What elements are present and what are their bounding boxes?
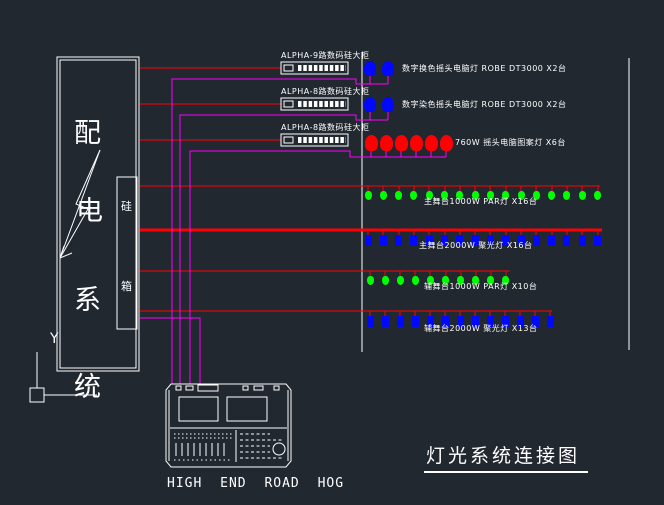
fixture-stem [475, 271, 476, 276]
fixture-stem [459, 186, 460, 191]
row-label-2: 数字染色摇头电脑灯 ROBE DT3000 X2台 [402, 101, 567, 109]
fixture-stem [445, 311, 446, 316]
spot-fixture [410, 235, 417, 246]
fixture-stem [413, 186, 414, 191]
cabinet-char-4: 统 [74, 374, 101, 401]
spot-fixture [382, 316, 389, 327]
spot-fixture [548, 235, 555, 246]
fixture-stem [505, 311, 506, 316]
fixture-stem [551, 230, 552, 235]
fader-bank [176, 443, 224, 456]
par-fixture [412, 276, 419, 285]
fixture-stem [505, 186, 506, 191]
fixture-stem [475, 230, 476, 235]
moving-head-fixture [425, 135, 438, 151]
spot-fixture [579, 235, 586, 246]
moving-head-fixture [440, 135, 453, 151]
spot-fixture [594, 235, 601, 246]
fixture-stem [385, 271, 386, 276]
moving-head-fixture [365, 135, 378, 151]
cad-canvas[interactable]: 配 电 系 统 硅 箱 ALPHA-9路数码硅大柜 ALPHA-8路数码硅大柜 … [0, 0, 664, 505]
dimmer-rack-1[interactable] [281, 62, 348, 74]
fixture-stem [505, 271, 506, 276]
row-label-7: 辅舞台2000W 聚光灯 X13台 [424, 325, 538, 333]
par-fixture [365, 191, 372, 200]
row-label-6: 辅舞台1000W PAR灯 X10台 [424, 283, 537, 291]
fixture-stem [413, 230, 414, 235]
fixture-stem [415, 271, 416, 276]
par-fixture [594, 191, 601, 200]
row-label-5: 主舞台2000W 聚光灯 X16台 [419, 242, 533, 250]
fixture-stem [535, 311, 536, 316]
fixture-stem [551, 186, 552, 191]
fixture-stem [383, 230, 384, 235]
spot-fixture [365, 235, 372, 246]
drawing-title: 灯光系统连接图 [424, 447, 588, 473]
par-fixture [382, 276, 389, 285]
par-fixture [367, 276, 374, 285]
console-label: HIGH END ROAD HOG [167, 477, 344, 490]
spot-fixture [547, 316, 554, 327]
fixture-stem [430, 311, 431, 316]
rack-label-3: ALPHA-8路数码硅大柜 [281, 124, 370, 132]
fixture-stem [368, 230, 369, 235]
fixture-stem [597, 186, 598, 191]
par-fixture [397, 276, 404, 285]
spot-fixture [412, 316, 419, 327]
linework-layer [0, 0, 664, 505]
fixture-stem [400, 271, 401, 276]
fixture-stem [415, 311, 416, 316]
fixture-stem [460, 271, 461, 276]
fixture-stem [597, 230, 598, 235]
moving-head-fixture [410, 135, 423, 151]
trackball-icon [273, 443, 285, 455]
fixture-stem [475, 186, 476, 191]
fixture-stem [444, 230, 445, 235]
spot-fixture [563, 235, 570, 246]
fixture-stem [444, 186, 445, 191]
fixture-stem [582, 230, 583, 235]
fixture-stem [383, 186, 384, 191]
fixture-stem [550, 311, 551, 316]
moving-head-fixture [395, 135, 408, 151]
fixture-stem [521, 186, 522, 191]
fixture-stem [490, 186, 491, 191]
fixture-stem [490, 271, 491, 276]
fixture-stem [475, 311, 476, 316]
dimmer-box-char-2: 箱 [121, 281, 132, 292]
fixture-stem [370, 271, 371, 276]
dimmer-box-char-1: 硅 [121, 201, 132, 212]
fixture-stem [566, 230, 567, 235]
fixture-stem [582, 186, 583, 191]
spot-fixture [395, 235, 402, 246]
spot-fixture [380, 235, 387, 246]
fixture-stem [398, 230, 399, 235]
fixture-stem [430, 271, 431, 276]
dimmer-rack-3[interactable] [281, 134, 348, 146]
spot-fixture [397, 316, 404, 327]
fixture-stem [460, 311, 461, 316]
fixture-stem [536, 186, 537, 191]
fixture-stem [385, 311, 386, 316]
moving-head-fixture [364, 97, 376, 112]
cabinet-char-1: 配 [74, 120, 101, 147]
fixture-stem [445, 271, 446, 276]
ucs-y-label: Y [50, 332, 59, 346]
fixture-stem [505, 230, 506, 235]
row-label-4: 主舞台1000W PAR灯 X16台 [424, 198, 537, 206]
fixture-stem [370, 311, 371, 316]
par-fixture [380, 191, 387, 200]
fixture-stem [521, 230, 522, 235]
fixture-stem [566, 186, 567, 191]
fixture-stem [368, 186, 369, 191]
dimmer-rack-2[interactable] [281, 98, 348, 110]
spot-fixture [533, 235, 540, 246]
fixture-stem [398, 186, 399, 191]
fixture-stem [400, 311, 401, 316]
moving-head-fixture [380, 135, 393, 151]
fixture-stem [429, 230, 430, 235]
spot-fixture [367, 316, 374, 327]
fixture-stem [429, 186, 430, 191]
row-label-3: 760W 摇头电脑图案灯 X6台 [455, 139, 566, 147]
cabinet-char-3: 系 [74, 287, 101, 314]
fixture-stem [459, 230, 460, 235]
fixture-stem [536, 230, 537, 235]
fixture-stem [520, 311, 521, 316]
moving-head-fixture [364, 61, 376, 76]
cabinet-char-2: 电 [76, 198, 103, 225]
fixture-stem [490, 311, 491, 316]
rack-label-1: ALPHA-9路数码硅大柜 [281, 52, 370, 60]
par-fixture [579, 191, 586, 200]
fixture-stem [490, 230, 491, 235]
row-label-1: 数字换色摇头电脑灯 ROBE DT3000 X2台 [402, 65, 567, 73]
lighting-console[interactable] [166, 384, 291, 467]
moving-head-fixture [382, 61, 394, 76]
moving-head-fixture [382, 97, 394, 112]
rack-label-2: ALPHA-8路数码硅大柜 [281, 88, 370, 96]
